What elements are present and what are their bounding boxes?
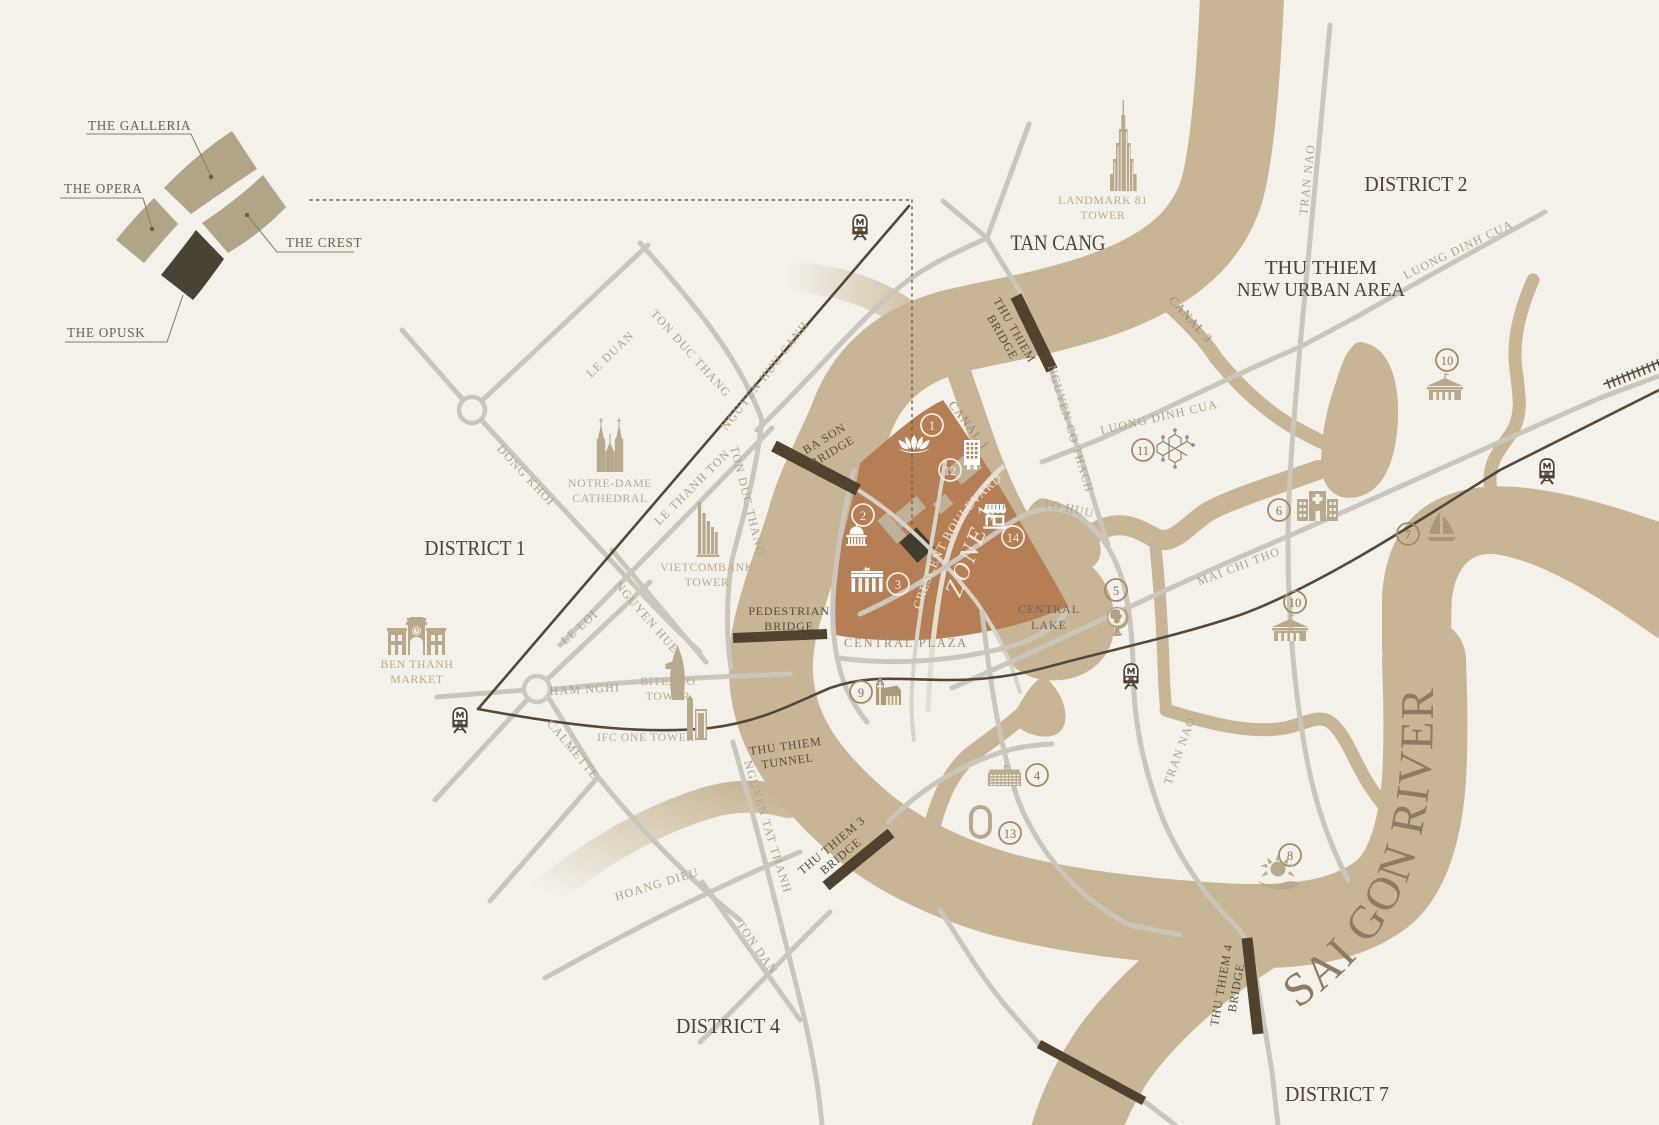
svg-text:THE GALLERIA: THE GALLERIA — [88, 118, 191, 133]
svg-text:13: 13 — [1004, 827, 1017, 841]
svg-text:NOTRE-DAME: NOTRE-DAME — [568, 476, 652, 490]
svg-text:LAKE: LAKE — [1031, 618, 1067, 632]
svg-text:9: 9 — [858, 686, 864, 700]
svg-text:THE OPUSK: THE OPUSK — [67, 325, 145, 340]
svg-text:TOWER: TOWER — [685, 575, 730, 589]
svg-text:TAN CANG: TAN CANG — [1011, 230, 1106, 255]
svg-text:THU THIEM: THU THIEM — [1265, 257, 1377, 279]
svg-text:10: 10 — [1441, 354, 1454, 368]
svg-text:11: 11 — [1137, 444, 1149, 458]
svg-text:14: 14 — [1007, 531, 1020, 545]
svg-text:THE OPERA: THE OPERA — [64, 181, 142, 196]
svg-text:DISTRICT 2: DISTRICT 2 — [1365, 172, 1468, 196]
svg-text:4: 4 — [1034, 769, 1041, 783]
svg-text:DISTRICT 1: DISTRICT 1 — [425, 536, 526, 560]
svg-text:CENTRAL: CENTRAL — [1018, 602, 1080, 616]
svg-text:NEW URBAN AREA: NEW URBAN AREA — [1237, 279, 1405, 301]
svg-text:2: 2 — [860, 509, 866, 523]
svg-text:1: 1 — [929, 419, 935, 433]
svg-text:12: 12 — [944, 464, 957, 478]
svg-text:BRIDGE: BRIDGE — [764, 619, 813, 633]
svg-text:BITEXCO: BITEXCO — [640, 674, 695, 688]
svg-text:THE CREST: THE CREST — [286, 235, 362, 250]
svg-text:7: 7 — [1405, 528, 1411, 542]
svg-text:MARKET: MARKET — [390, 672, 444, 686]
svg-text:5: 5 — [1113, 584, 1119, 598]
svg-text:PEDESTRIAN: PEDESTRIAN — [748, 604, 829, 618]
svg-text:DISTRICT 7: DISTRICT 7 — [1285, 1082, 1389, 1106]
svg-text:IFC ONE TOWER: IFC ONE TOWER — [597, 730, 695, 744]
svg-text:TOWER: TOWER — [1081, 208, 1126, 222]
svg-text:BEN THANH: BEN THANH — [380, 657, 453, 671]
svg-text:LANDMARK 81: LANDMARK 81 — [1058, 193, 1148, 207]
svg-text:3: 3 — [895, 578, 901, 592]
svg-text:CENTRAL PLAZA: CENTRAL PLAZA — [844, 636, 968, 650]
svg-text:10: 10 — [1289, 596, 1302, 610]
svg-text:DISTRICT 4: DISTRICT 4 — [676, 1014, 780, 1038]
svg-text:CATHEDRAL: CATHEDRAL — [572, 491, 648, 505]
svg-text:VIETCOMBANK: VIETCOMBANK — [660, 560, 754, 574]
svg-text:6: 6 — [1276, 504, 1282, 518]
